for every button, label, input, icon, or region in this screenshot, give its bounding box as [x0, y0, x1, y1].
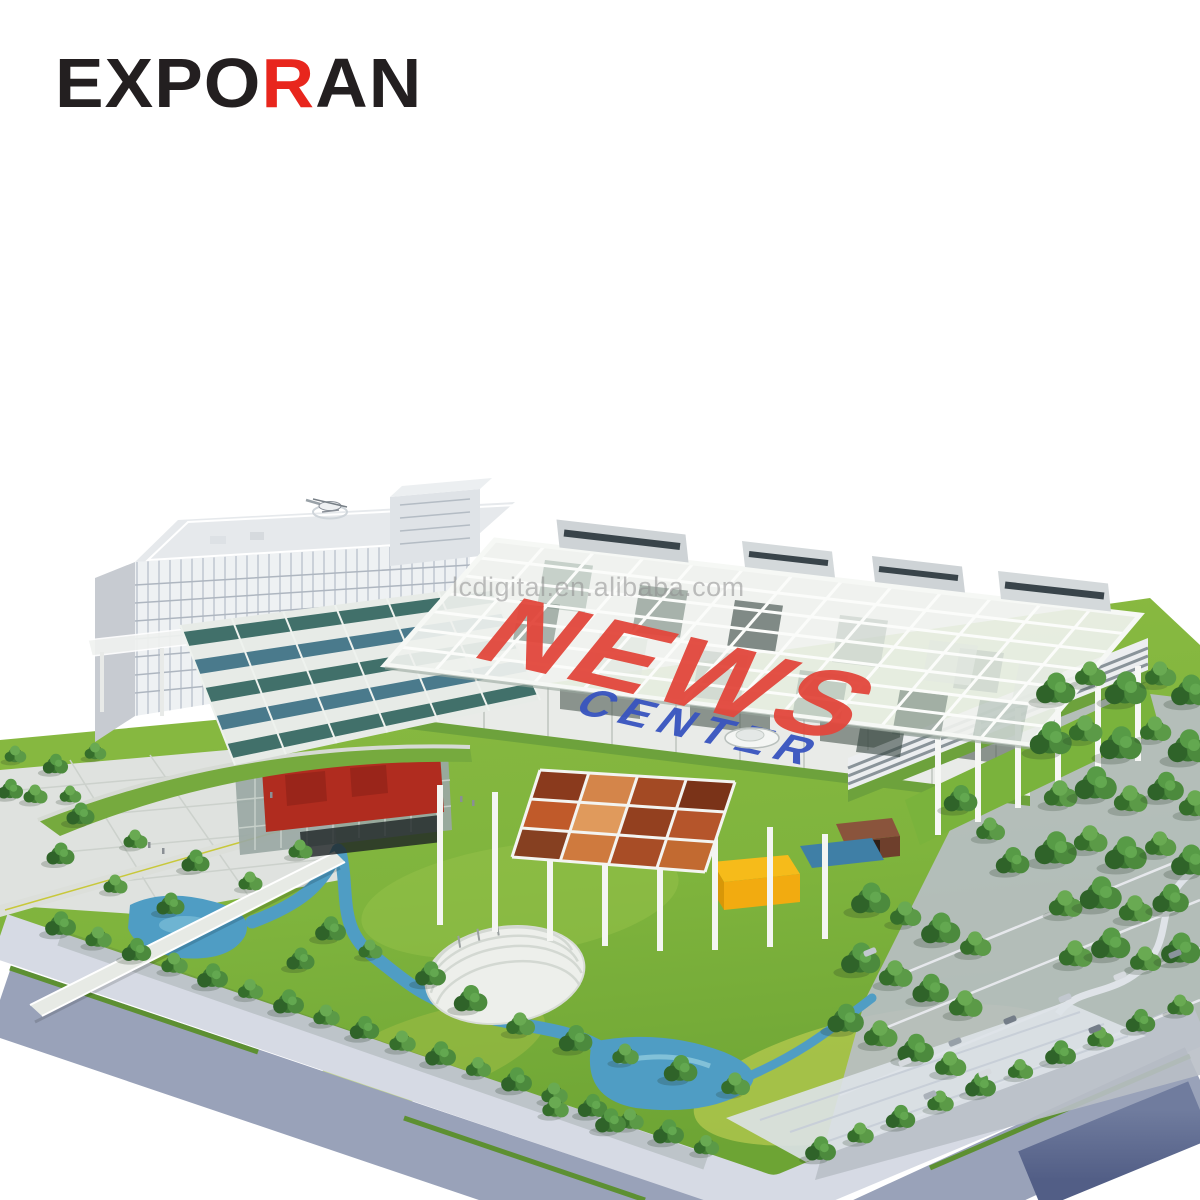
- watermark-text: lcdigital.en.alibaba.com: [452, 572, 745, 603]
- photo-mural-canopy: [512, 770, 735, 872]
- product-photo: NEWS CENTER: [0, 0, 1200, 1200]
- shell-dome: [725, 728, 779, 748]
- yellow-pavilion: [712, 855, 800, 910]
- helicopter: [306, 499, 347, 512]
